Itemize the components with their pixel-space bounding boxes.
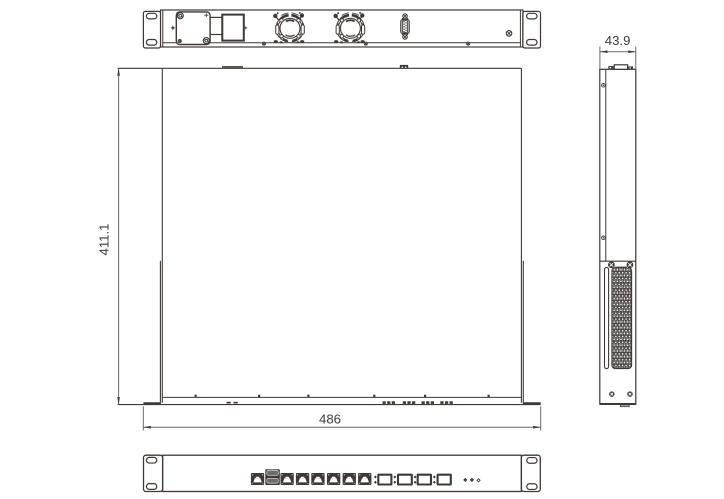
svg-text:411.1: 411.1 [97,223,112,255]
svg-text:43.9: 43.9 [605,33,631,48]
svg-text:486: 486 [319,411,341,426]
